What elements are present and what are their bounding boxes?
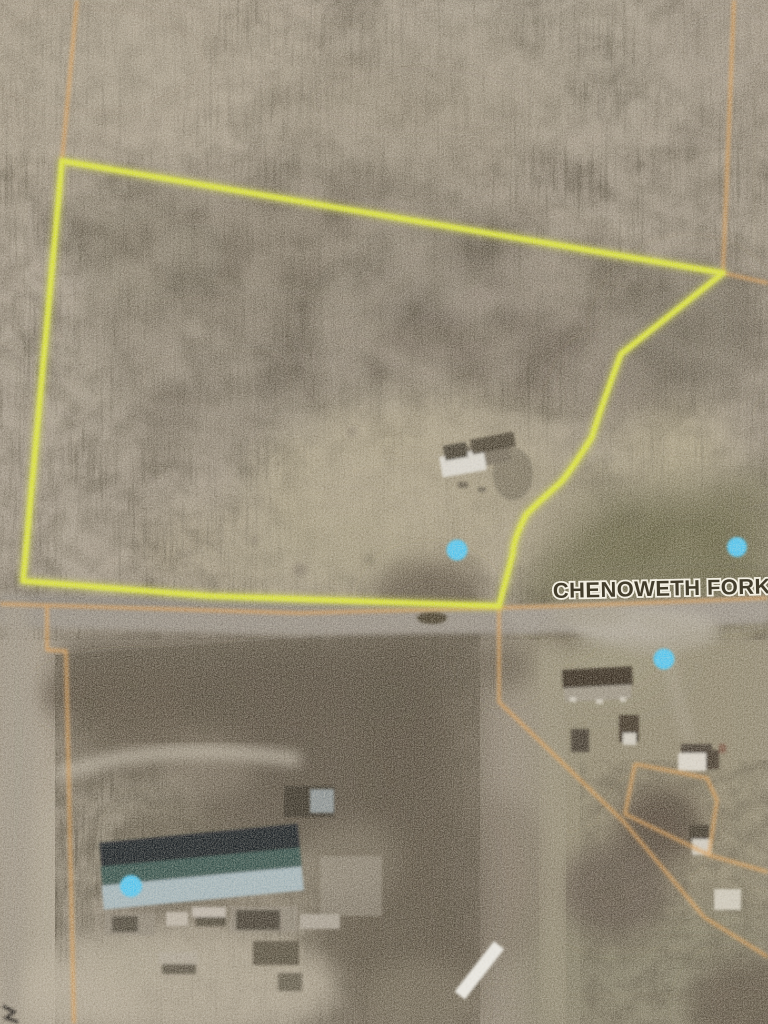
svg-text:CHENOWETH FORK: CHENOWETH FORK xyxy=(553,574,768,603)
